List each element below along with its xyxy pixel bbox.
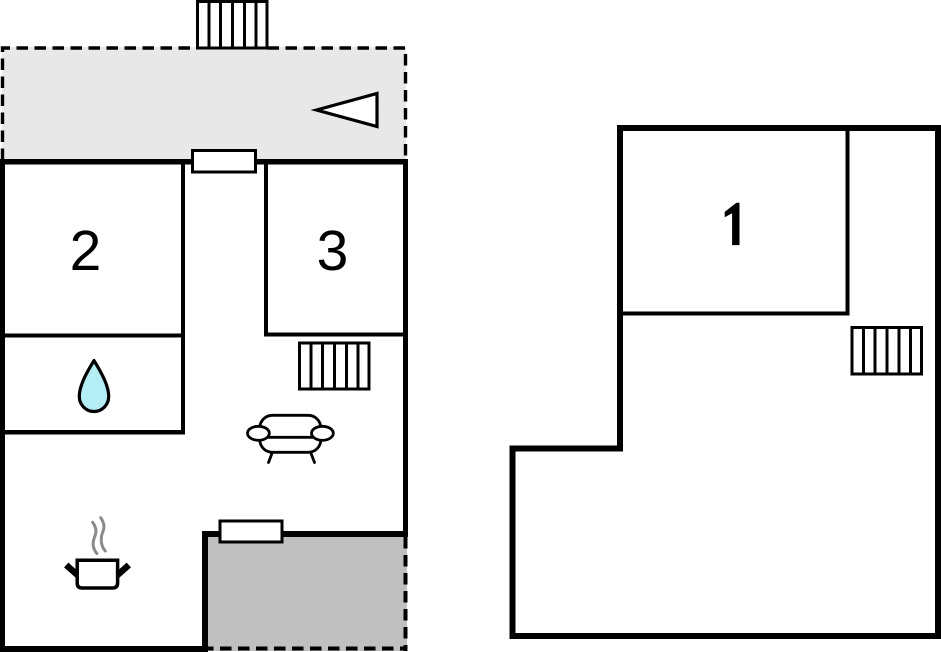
svg-text:2: 2 bbox=[70, 219, 102, 283]
svg-text:3: 3 bbox=[317, 219, 349, 283]
